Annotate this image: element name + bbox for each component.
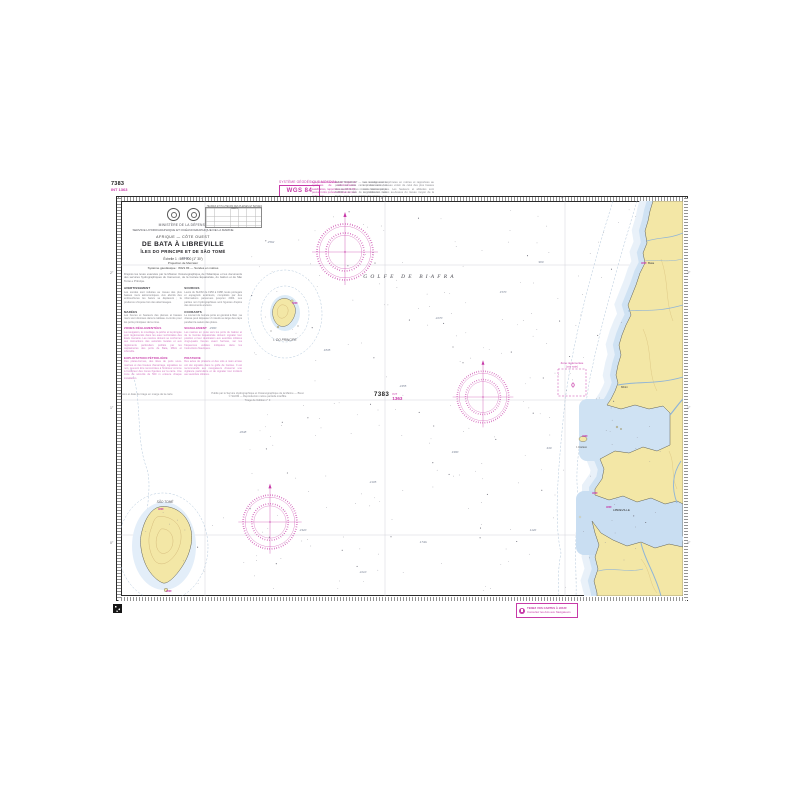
principe-label: I. DO PRINCIPE (273, 338, 297, 342)
chart-number: 7383 (111, 181, 127, 187)
note-tides: MARÉESLes heures et hauteurs des pleines… (124, 310, 182, 324)
service-line: SERVICE HYDROGRAPHIQUE ET OCÉANOGRAPHIQU… (124, 228, 242, 232)
island-principe (270, 295, 300, 332)
zone-label-line1: Zone réglementée (561, 361, 584, 365)
note-regulated-zones: ZONES RÉGLEMENTÉESLa navigation, le moui… (124, 326, 182, 353)
lon-label-7e: 7° (201, 186, 204, 204)
border-ticks-left (117, 198, 121, 600)
svg-text:2105: 2105 (369, 480, 377, 484)
chart-title: DE BATA À LIBREVILLE (124, 241, 242, 248)
lat-label-0: 0° (110, 531, 113, 549)
shom-emblem-icon (167, 208, 180, 221)
svg-text:960: 960 (538, 260, 543, 264)
zone-label-line2: (voir note) (566, 364, 578, 368)
lat-label-1n-right: 1° (687, 396, 690, 414)
chart-int-number: INT 1363 (111, 187, 127, 192)
lat-label-1n: 1° (110, 396, 113, 414)
chart-datum: Système géodésique : WGS 84 — Sondes en … (124, 266, 242, 270)
chart-number-top-left: 7383 INT 1363 (111, 181, 127, 193)
svg-text:2270: 2270 (435, 316, 443, 320)
chart-number-bottom-right: 7383 INT 1363 (374, 392, 402, 401)
qr-code (113, 604, 122, 613)
imprint: Publié par le Service Hydrographique et … (205, 392, 310, 403)
notes-columns: AVERTISSEMENTLes sondes sont réduites au… (124, 286, 242, 379)
compass-rose-center (453, 360, 514, 427)
svg-text:2455: 2455 (399, 384, 407, 388)
chart-sheet: 7383 INT 1363 SYSTÈME GÉODÉSIQUE MONDIAL… (110, 180, 693, 632)
svg-text:2562: 2562 (267, 240, 275, 244)
chart-subtitle: ÎLES DO PRINCIPE ET DE SÃO TOMÉ (124, 249, 242, 254)
note-piracy: PIRATERIEDes actes de piraterie et des v… (184, 356, 242, 380)
info-icon (519, 608, 525, 614)
lat-label-2n-right: 2° (687, 261, 690, 279)
marine-emblem-icon (187, 208, 200, 221)
svg-text:1835: 1835 (324, 348, 331, 352)
svg-text:1570: 1570 (500, 290, 507, 294)
svg-text:1120: 1120 (530, 528, 537, 532)
note-sources: SOURCESLevés du SHOM de 1956 à 1988, lev… (184, 286, 242, 307)
title-block: MINISTÈRE DE LA DÉFENSE SERVICE HYDROGRA… (124, 208, 242, 380)
tide-table: HEURES ET HAUTEURS DES PLEINES ET BASSES… (205, 207, 262, 228)
chart-projection: Projection de Mercator (124, 261, 242, 265)
lat-label-0-right: 0° (687, 531, 690, 549)
mbini-label: Mbini (621, 385, 628, 389)
sao-tome-label: SÃO TOMÉ (157, 499, 175, 504)
chart-intro: D'après les levés exécutés par la Missio… (124, 273, 242, 284)
border-ticks-bottom (118, 597, 687, 601)
svg-text:2648: 2648 (239, 430, 247, 434)
lat-label-2n: 2° (110, 261, 113, 279)
int-number: 1363 (392, 396, 402, 401)
svg-text:2320: 2320 (299, 528, 307, 532)
svg-text:430: 430 (546, 446, 551, 450)
tide-table-title: HEURES ET HAUTEURS DES PLEINES ET BASSES… (206, 206, 263, 210)
lon-label-9e: 9° (561, 186, 564, 204)
note-warning: AVERTISSEMENTLes sondes sont réduites au… (124, 286, 182, 307)
chart-number: 7383 (374, 392, 389, 398)
page-canvas: 7383 INT 1363 SYSTÈME GÉODÉSIQUE MONDIAL… (0, 0, 800, 800)
island-sao-tome (132, 502, 196, 592)
regulated-zone: Zone réglementée (voir note) (558, 361, 586, 396)
compass-rose-south (238, 484, 301, 554)
note-oil: EXPLOITATION PÉTROLIÈREDes plates-formes… (124, 356, 182, 380)
svg-text:1980: 1980 (452, 450, 459, 454)
svg-text:1740: 1740 (420, 540, 427, 544)
note-currents: COURANTSLe courant de Guinée porte en gé… (184, 310, 242, 324)
region-line: AFRIQUE — CÔTE OUEST (124, 235, 242, 239)
bata-label: Bata (648, 261, 655, 265)
update-notice-box: TENEZ VOS CARTES À JOUR Consultez les Av… (516, 603, 578, 618)
libreville-label: LIBREVILLE (613, 508, 630, 512)
svg-text:2210: 2210 (359, 570, 367, 574)
sea-name-label: GOLFE DE BIAFRA (363, 274, 457, 280)
note-reporting: SIGNALEMENTLes navires en route vers les… (184, 326, 242, 353)
lon-label-8e: 8° (381, 186, 384, 204)
qr-caption: Numéro et date du tirage en marge de la … (118, 393, 203, 396)
corisco-label: I. Corisco (576, 445, 588, 449)
chart-scale: Échelle 1 : 500 000 (1° 30′) (124, 257, 242, 261)
